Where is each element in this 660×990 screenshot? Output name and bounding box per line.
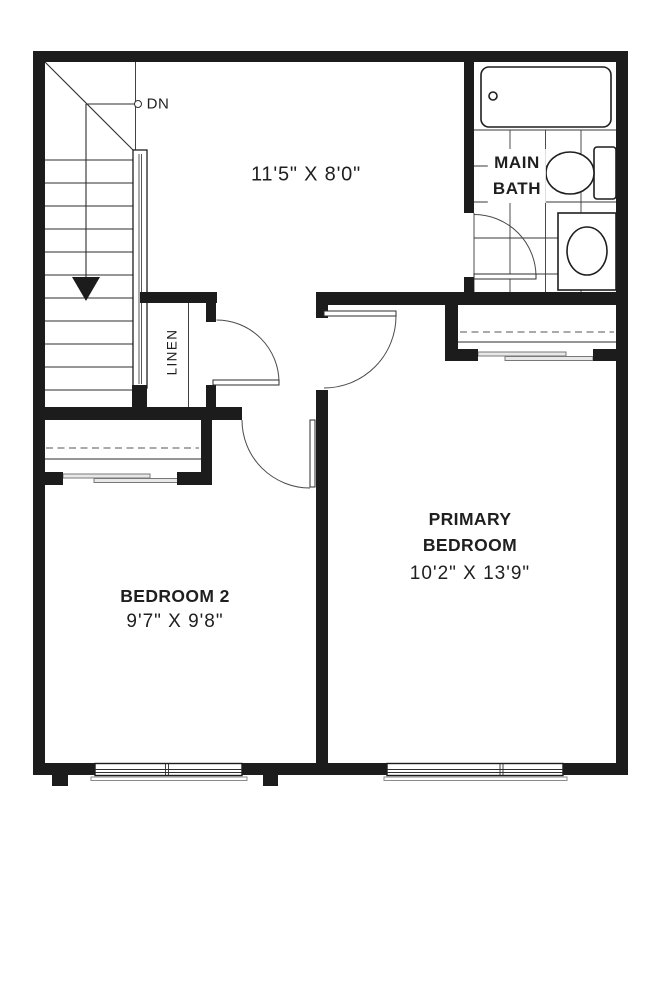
primary-window: [384, 764, 567, 781]
down-arrow: [72, 104, 100, 301]
wall-outer-bottom: [33, 763, 95, 775]
stairs-dn-label: DN: [147, 96, 170, 113]
wall-closet2-front-right: [177, 472, 212, 485]
hall-dimensions: 11'5" X 8'0": [251, 164, 361, 187]
tub-drain: [489, 92, 497, 100]
bypass-door: [505, 357, 593, 361]
primary-bedroom-dimensions: 10'2" X 13'9": [410, 563, 530, 585]
bedroom2-door: [242, 420, 315, 488]
linen-door: [213, 320, 279, 385]
wall-closetP-left: [445, 305, 458, 349]
primary-bedroom-line1: PRIMARY: [423, 506, 517, 532]
floor-plan: DN 11'5" X 8'0" MAIN BATH LINEN BEDROOM …: [0, 0, 660, 990]
bath-door: [474, 215, 536, 280]
stair-break-diagonal: [45, 62, 133, 150]
wall-closet2-front-left: [33, 472, 63, 485]
wall-linen-right-bottom: [206, 385, 216, 409]
stair-railing: [133, 150, 147, 388]
wall-bedroom2-primary: [316, 390, 328, 763]
bypass-door: [63, 474, 150, 478]
main-bath-line1: MAIN: [493, 150, 541, 176]
sink-basin: [567, 227, 607, 275]
bypass-door: [94, 479, 183, 483]
primary-closet: [458, 332, 616, 361]
wall-closetP-front-right: [593, 349, 616, 361]
wall-railing-base: [132, 385, 147, 409]
bypass-door: [478, 352, 566, 356]
wall-outer-top: [33, 51, 628, 62]
exterior-post: [263, 775, 278, 786]
wall-closetP-front-left: [445, 349, 478, 361]
primary-bedroom-line2: BEDROOM: [423, 532, 517, 558]
bedroom2-label: BEDROOM 2: [120, 583, 230, 609]
bathtub: [481, 67, 611, 127]
wall-hall-divider-left: [140, 292, 217, 303]
exterior-post: [52, 775, 68, 786]
wall-bath-door-stub: [464, 277, 474, 292]
wall-outer-right: [616, 51, 628, 775]
wall-outer-bottom: [242, 763, 387, 775]
linen-label: LINEN: [165, 329, 180, 376]
floor-plan-drawing: [0, 0, 660, 990]
bedroom2-window: [91, 764, 247, 781]
dn-leader-line: [86, 101, 142, 108]
main-bath-line2: BATH: [493, 176, 541, 202]
toilet: [546, 147, 616, 199]
wall-outer-bottom: [563, 763, 628, 775]
wall-linen-right-top: [206, 303, 216, 322]
bedroom2-dimensions: 9'7" X 9'8": [126, 611, 223, 633]
wall-bedroom2-top: [33, 407, 242, 420]
primary-bedroom-label: PRIMARY BEDROOM: [423, 506, 517, 558]
sink-vanity: [558, 213, 616, 290]
wall-bath-left: [464, 62, 474, 213]
wall-hall-divider-right: [316, 292, 628, 305]
stairs: [45, 62, 136, 390]
primary-bedroom-door: [324, 311, 396, 388]
main-bath-label: MAIN BATH: [488, 149, 546, 203]
